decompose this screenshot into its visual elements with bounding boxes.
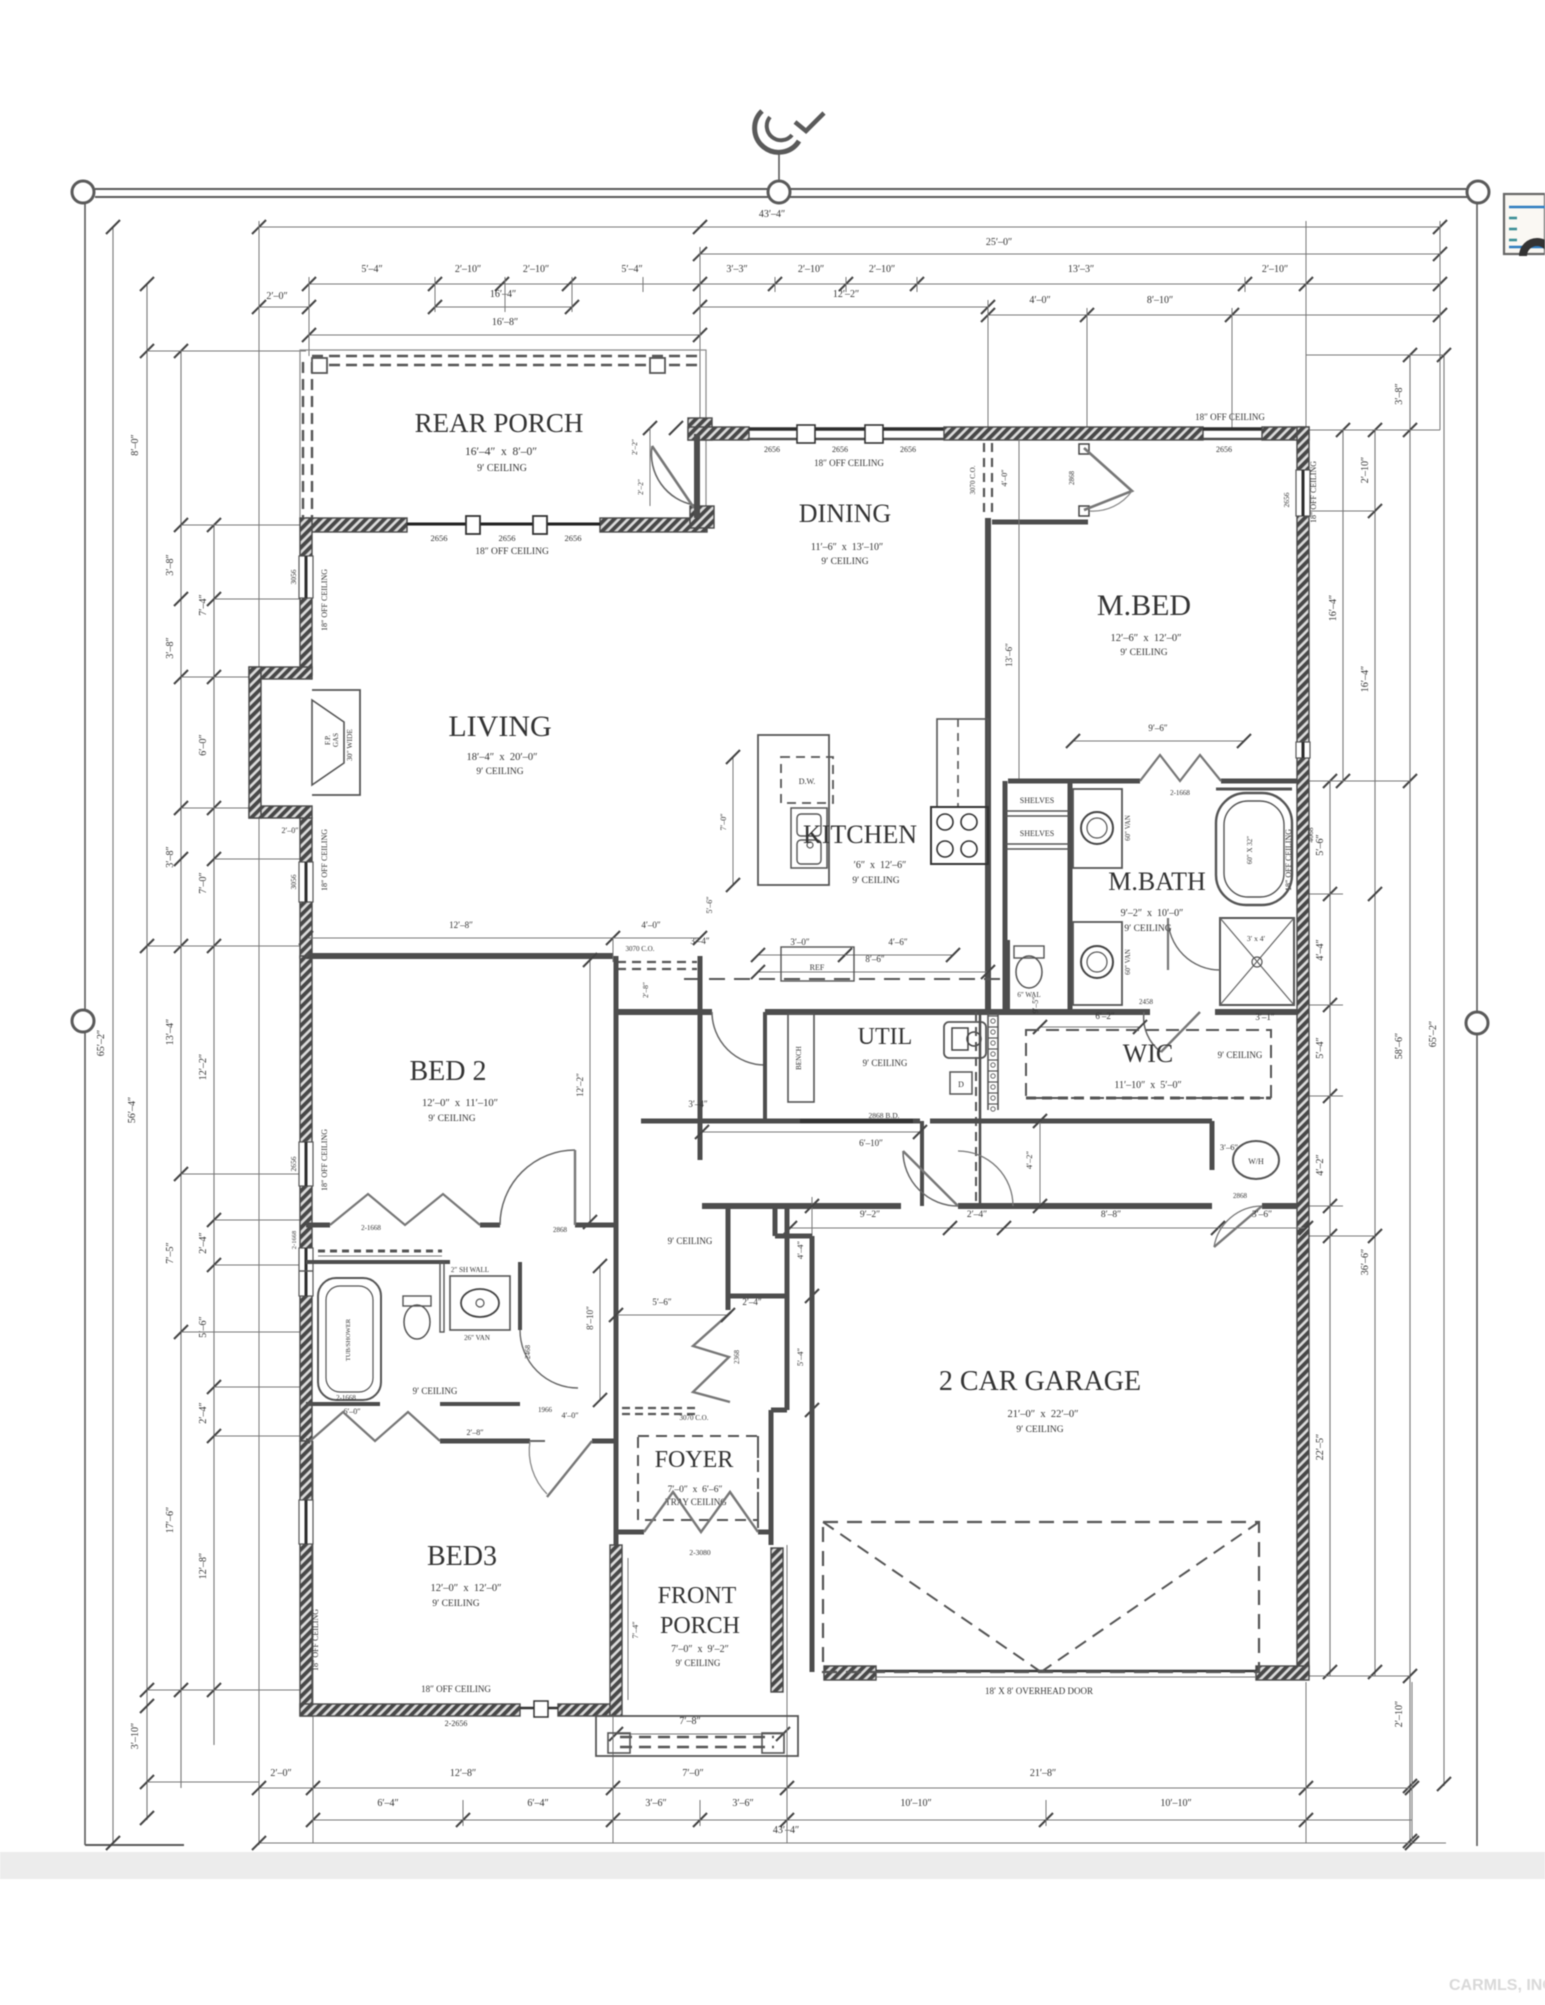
svg-text:9′ CEILING: 9′ CEILING (413, 1386, 458, 1396)
svg-text:6′–2″: 6′–2″ (1095, 1011, 1114, 1021)
svg-text:2868: 2868 (1068, 471, 1076, 486)
svg-text:3056: 3056 (289, 874, 298, 889)
svg-text:30″ WIDE: 30″ WIDE (345, 729, 354, 761)
svg-text:26″ VAN: 26″ VAN (464, 1334, 490, 1342)
svg-text:1966: 1966 (538, 1406, 553, 1414)
svg-text:2656: 2656 (832, 445, 848, 454)
svg-text:SHELVES: SHELVES (1020, 829, 1054, 838)
svg-text:3′–6″: 3′–6″ (1252, 1210, 1272, 1220)
svg-text:4′–4″: 4′–4″ (795, 1240, 805, 1259)
svg-text:8′–0″: 8′–0″ (130, 434, 141, 455)
svg-text:3′–8″: 3′–8″ (165, 554, 176, 575)
svg-text:3′–6″: 3′–6″ (645, 1798, 666, 1809)
svg-text:18″ OFF CEILING: 18″ OFF CEILING (320, 569, 329, 631)
svg-text:9′ CEILING: 9′ CEILING (1016, 1425, 1063, 1435)
svg-text:4′–0″: 4′–0″ (1000, 469, 1009, 486)
svg-text:WIC: WIC (1123, 1039, 1174, 1068)
svg-text:58′–6″: 58′–6″ (1394, 1033, 1405, 1059)
svg-text:2-1668: 2-1668 (291, 1231, 298, 1249)
svg-text:13′–6″: 13′–6″ (1004, 643, 1014, 667)
svg-text:6′–4″: 6′–4″ (527, 1798, 548, 1809)
svg-text:3′–1″: 3′–1″ (1255, 1012, 1274, 1022)
svg-text:60″ X 32″: 60″ X 32″ (1246, 836, 1254, 864)
svg-text:2′–0″: 2′–0″ (266, 291, 287, 302)
svg-text:2868 B.D.: 2868 B.D. (868, 1111, 899, 1120)
svg-text:3′–3″: 3′–3″ (726, 264, 747, 275)
svg-text:9′ CEILING: 9′ CEILING (821, 557, 868, 567)
svg-text:2 CAR GARAGE: 2 CAR GARAGE (939, 1366, 1141, 1397)
svg-text:D.W.: D.W. (799, 777, 816, 786)
svg-text:REAR PORCH: REAR PORCH (415, 408, 584, 438)
svg-text:GAS: GAS (332, 733, 340, 747)
svg-text:18′ X 8′ OVERHEAD DOOR: 18′ X 8′ OVERHEAD DOOR (985, 1686, 1093, 1696)
svg-text:UTIL: UTIL (858, 1024, 913, 1050)
svg-text:12′–2″: 12′–2″ (198, 1054, 209, 1080)
svg-text:8′–8″: 8′–8″ (1101, 1210, 1121, 1220)
svg-text:8′–10″: 8′–10″ (1147, 295, 1173, 306)
svg-text:7′–0″: 7′–0″ (198, 872, 209, 893)
svg-text:2′–10″: 2′–10″ (455, 264, 481, 275)
svg-text:2′–4″: 2′–4″ (198, 1232, 209, 1253)
svg-text:9′ CEILING: 9′ CEILING (477, 463, 527, 474)
svg-text:4′–6″: 4′–6″ (888, 937, 907, 947)
svg-text:2-1668: 2-1668 (1170, 789, 1190, 797)
svg-text:2868: 2868 (553, 1226, 568, 1234)
svg-text:FOYER: FOYER (655, 1447, 734, 1473)
svg-text:4′–2″: 4′–2″ (1024, 1150, 1034, 1169)
svg-text:9′ CEILING: 9′ CEILING (1120, 648, 1167, 658)
svg-text:2′–4″: 2′–4″ (742, 1297, 761, 1307)
svg-text:4′–0″: 4′–0″ (641, 920, 660, 930)
svg-text:4′–0″: 4′–0″ (561, 1411, 578, 1420)
svg-text:KITCHEN: KITCHEN (803, 820, 917, 849)
svg-text:REF: REF (810, 963, 825, 972)
svg-text:2′–10″: 2′–10″ (869, 264, 895, 275)
svg-text:5′–4″: 5′–4″ (795, 1347, 805, 1366)
svg-text:2′–10″: 2′–10″ (1394, 1701, 1405, 1727)
svg-text:4′–2″: 4′–2″ (1315, 1154, 1326, 1175)
svg-text:56′–4″: 56′–4″ (127, 1097, 138, 1123)
svg-text:7′–0″: 7′–0″ (682, 1768, 703, 1779)
svg-text:4′–0″: 4′–0″ (1029, 295, 1050, 306)
svg-text:7′–4″: 7′–4″ (631, 1621, 640, 1638)
svg-text:3′–8″: 3′–8″ (1394, 383, 1405, 404)
svg-text:21′–8″: 21′–8″ (1030, 1768, 1056, 1779)
svg-text:25′–0″: 25′–0″ (986, 237, 1012, 248)
svg-text:7′–0″: 7′–0″ (719, 813, 728, 830)
svg-text:2′–0″: 2′–0″ (270, 1768, 291, 1779)
svg-text:F.P.: F.P. (324, 735, 332, 745)
svg-text:4068: 4068 (1306, 827, 1315, 842)
svg-text:2′–8″: 2′–8″ (641, 982, 650, 998)
svg-text:9′ CEILING: 9′ CEILING (863, 1058, 908, 1068)
svg-text:18″ OFF CEILING: 18″ OFF CEILING (1309, 461, 1318, 523)
svg-text:LIVING: LIVING (448, 710, 551, 743)
svg-text:7′–0″ x 9′–2″: 7′–0″ x 9′–2″ (671, 1644, 729, 1655)
svg-text:13′–4″: 13′–4″ (165, 1019, 176, 1045)
svg-text:2-3080: 2-3080 (689, 1548, 710, 1557)
svg-text:TUB/SHOWER: TUB/SHOWER (345, 1318, 352, 1361)
svg-text:2′–10″: 2′–10″ (523, 264, 549, 275)
svg-text:DINING: DINING (799, 499, 891, 528)
svg-text:M.BED: M.BED (1097, 589, 1191, 622)
svg-text:18″ OFF CEILING: 18″ OFF CEILING (814, 458, 884, 468)
svg-text:7′–5″: 7′–5″ (165, 1242, 176, 1263)
svg-text:3′–8″: 3′–8″ (165, 637, 176, 658)
svg-text:TRAY CEILING: TRAY CEILING (665, 1497, 727, 1507)
svg-text:12′–0″ x 11′–10″: 12′–0″ x 11′–10″ (422, 1098, 498, 1109)
svg-text:12′–2″: 12′–2″ (575, 1073, 585, 1097)
svg-text:9′ CEILING: 9′ CEILING (432, 1599, 479, 1609)
svg-text:2458: 2458 (1139, 998, 1154, 1006)
svg-text:17′–6″: 17′–6″ (165, 1507, 176, 1533)
svg-text:2′–8″: 2′–8″ (466, 1428, 483, 1437)
svg-text:18″ OFF CEILING: 18″ OFF CEILING (320, 829, 329, 891)
svg-text:18″ OFF CEILING: 18″ OFF CEILING (320, 1129, 329, 1191)
svg-text:8′–10″: 8′–10″ (585, 1306, 595, 1330)
svg-text:9′–2″: 9′–2″ (860, 1210, 880, 1220)
svg-text:D: D (958, 1080, 964, 1089)
svg-text:3′–0″: 3′–0″ (790, 937, 809, 947)
svg-text:SHELVES: SHELVES (1020, 796, 1054, 805)
svg-text:3056: 3056 (289, 569, 298, 584)
svg-text:60″ VAN: 60″ VAN (1124, 815, 1132, 841)
svg-text:9′ CEILING: 9′ CEILING (476, 767, 523, 777)
svg-text:21′–0″ x 22′–0″: 21′–0″ x 22′–0″ (1007, 1409, 1078, 1420)
svg-text:43′–4″: 43′–4″ (773, 1825, 799, 1836)
svg-text:10′–10″: 10′–10″ (900, 1798, 931, 1809)
svg-text:5′–6″: 5′–6″ (705, 896, 714, 913)
svg-text:8′–6″: 8′–6″ (865, 954, 884, 964)
svg-text:18″ OFF CEILING: 18″ OFF CEILING (1195, 412, 1265, 422)
svg-text:BENCH: BENCH (795, 1046, 803, 1070)
svg-text:60″ VAN: 60″ VAN (1124, 949, 1132, 975)
svg-text:M.BATH: M.BATH (1108, 867, 1206, 896)
svg-text:5′–6″: 5′–6″ (1315, 834, 1326, 855)
svg-text:18″ OFF CEILING: 18″ OFF CEILING (421, 1684, 491, 1694)
svg-text:6′–4″: 6′–4″ (377, 1798, 398, 1809)
svg-text:BED3: BED3 (427, 1541, 497, 1572)
svg-text:2′–2″: 2′–2″ (630, 439, 639, 455)
svg-text:2368: 2368 (733, 1350, 741, 1365)
svg-text:12′–8″: 12′–8″ (198, 1553, 209, 1579)
svg-text:2468: 2468 (524, 1345, 532, 1360)
svg-text:9′ CEILING: 9′ CEILING (428, 1114, 475, 1124)
svg-text:PORCH: PORCH (660, 1613, 740, 1639)
svg-text:9′ CEILING: 9′ CEILING (852, 876, 899, 886)
svg-text:3′–6″: 3′–6″ (732, 1798, 753, 1809)
svg-text:12′–8″: 12′–8″ (450, 1768, 476, 1779)
svg-text:2-2656: 2-2656 (445, 1719, 468, 1728)
svg-text:22′–5″: 22′–5″ (1315, 1434, 1326, 1460)
svg-text:16′–8″: 16′–8″ (492, 317, 518, 328)
svg-text:2-1668: 2-1668 (336, 1394, 356, 1402)
svg-text:3′–10″: 3′–10″ (130, 1723, 141, 1749)
svg-text:3070 C.O.: 3070 C.O. (680, 1414, 709, 1422)
svg-text:18′–4″ x 20′–0″: 18′–4″ x 20′–0″ (466, 752, 537, 763)
svg-text:16′–4″: 16′–4″ (1328, 595, 1339, 621)
svg-text:2656: 2656 (431, 533, 448, 543)
svg-text:2′–4″: 2′–4″ (198, 1402, 209, 1423)
svg-text:12′–6″ x 12′–0″: 12′–6″ x 12′–0″ (1110, 633, 1181, 644)
svg-text:16′–4″: 16′–4″ (1360, 666, 1371, 692)
svg-text:3′–4″: 3′–4″ (688, 1099, 707, 1109)
svg-text:5′–4″: 5′–4″ (1315, 1037, 1326, 1058)
svg-text:10′–10″: 10′–10″ (1160, 1798, 1191, 1809)
svg-text:12′–8″: 12′–8″ (449, 920, 473, 930)
svg-text:4′–4″: 4′–4″ (1315, 939, 1326, 960)
svg-text:BED 2: BED 2 (410, 1056, 487, 1087)
svg-text:2″ SH WALL: 2″ SH WALL (451, 1266, 489, 1274)
svg-text:43′–4″: 43′–4″ (759, 209, 785, 220)
svg-text:2′–2″: 2′–2″ (636, 479, 645, 495)
svg-text:9′–5″: 9′–5″ (1031, 996, 1040, 1013)
svg-text:W/H: W/H (1248, 1157, 1264, 1166)
svg-text:12′–0″ x 12′–0″: 12′–0″ x 12′–0″ (430, 1583, 501, 1594)
svg-text:13′–3″: 13′–3″ (1068, 264, 1094, 275)
svg-text:11′–10″ x 5′–0″: 11′–10″ x 5′–0″ (1114, 1080, 1181, 1091)
svg-text:65′–2″: 65′–2″ (96, 1030, 107, 1056)
svg-text:3′–6″: 3′–6″ (1220, 1142, 1239, 1152)
svg-text:9′ CEILING: 9′ CEILING (676, 1658, 721, 1668)
svg-text:5′–4″: 5′–4″ (621, 264, 642, 275)
svg-text:65′–2″: 65′–2″ (1428, 1021, 1439, 1047)
svg-text:7′–8″: 7′–8″ (679, 1716, 700, 1727)
svg-text:2656: 2656 (764, 445, 780, 454)
svg-text:3′ x 4′: 3′ x 4′ (1247, 934, 1266, 943)
svg-text:′6″ x 12′–6″: ′6″ x 12′–6″ (854, 860, 907, 871)
svg-text:9′ CEILING: 9′ CEILING (1124, 924, 1171, 934)
svg-text:6′–0″: 6′–0″ (198, 734, 209, 755)
svg-text:9′–2″ x 10′–0″: 9′–2″ x 10′–0″ (1121, 908, 1184, 919)
svg-text:2′–10″: 2′–10″ (798, 264, 824, 275)
svg-text:18″ OFF CEILING: 18″ OFF CEILING (475, 547, 549, 557)
svg-text:9′–6″: 9′–6″ (1148, 723, 1167, 733)
svg-text:2656: 2656 (565, 533, 582, 543)
svg-text:3070 C.O.: 3070 C.O. (626, 945, 655, 953)
svg-text:2656: 2656 (1216, 445, 1232, 454)
svg-text:6′–10″: 6′–10″ (859, 1138, 883, 1148)
svg-text:5′–6″: 5′–6″ (198, 1316, 209, 1337)
svg-text:36′–6″: 36′–6″ (1360, 1249, 1371, 1275)
svg-text:2′–10″: 2′–10″ (1262, 264, 1288, 275)
svg-text:9′ CEILING: 9′ CEILING (1218, 1050, 1263, 1060)
svg-text:7′–0″ x 6′–6″: 7′–0″ x 6′–6″ (668, 1485, 723, 1495)
svg-text:5′–6″: 5′–6″ (652, 1297, 671, 1307)
svg-text:2′–10″: 2′–10″ (1360, 457, 1371, 483)
svg-text:3070 C.O.: 3070 C.O. (969, 465, 977, 494)
svg-text:FRONT: FRONT (658, 1583, 737, 1609)
svg-text:11′–6″ x 13′–10″: 11′–6″ x 13′–10″ (811, 542, 883, 553)
svg-text:2656: 2656 (1282, 492, 1291, 507)
svg-text:2′–4″: 2′–4″ (967, 1210, 987, 1220)
svg-text:2-1668: 2-1668 (361, 1224, 381, 1232)
svg-text:CARMLS, INC: CARMLS, INC (1449, 1977, 1545, 1994)
svg-text:18″ OFF CEILING: 18″ OFF CEILING (311, 1609, 320, 1671)
svg-text:16′–4″ x 8′–0″: 16′–4″ x 8′–0″ (465, 446, 537, 458)
svg-text:9′ CEILING: 9′ CEILING (668, 1236, 713, 1246)
svg-text:2656: 2656 (900, 445, 916, 454)
svg-text:2′–0″: 2′–0″ (281, 826, 298, 835)
svg-text:16′–4″: 16′–4″ (490, 289, 516, 300)
svg-text:2868: 2868 (1233, 1192, 1248, 1200)
svg-text:2656: 2656 (499, 533, 516, 543)
svg-text:5′–4″: 5′–4″ (361, 264, 382, 275)
svg-text:2656: 2656 (289, 1156, 298, 1171)
